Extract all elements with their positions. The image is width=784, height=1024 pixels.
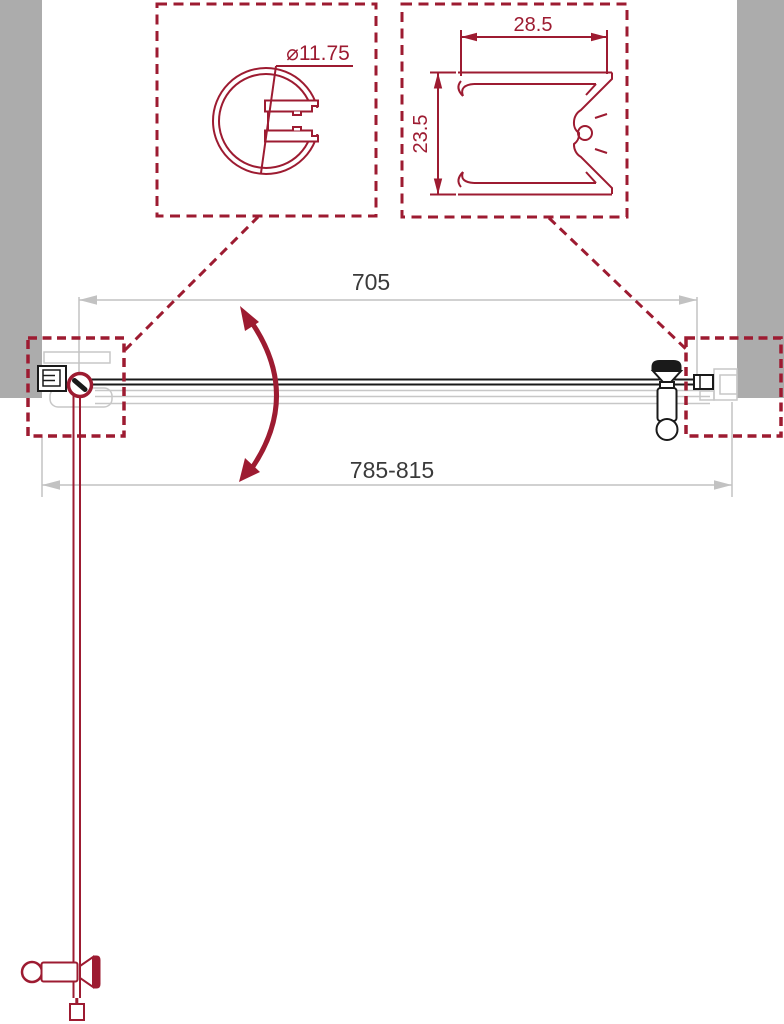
hinge-pivot: [69, 374, 92, 397]
dim-arrow-right: [714, 480, 732, 490]
detail-box-wall-profile: 28.5 23.5: [402, 4, 627, 217]
dim-arrow-left: [42, 480, 60, 490]
door-panel-plan: [85, 375, 713, 389]
technical-drawing-canvas: ⌀11.75 28.5: [0, 0, 784, 1024]
hinge-diameter-label: ⌀11.75: [286, 42, 350, 65]
dim-arrow-left: [79, 295, 97, 305]
leader-line-hinge: [125, 217, 258, 350]
wall-profile-height-label: 23.5: [410, 115, 432, 154]
dimension-wall-profile-height: 23.5: [410, 73, 456, 195]
shower-door-plan-drawing: ⌀11.75 28.5: [0, 0, 784, 1024]
door-swing-arc: [239, 306, 277, 482]
door-width-label: 705: [352, 269, 390, 295]
overall-width-label: 785-815: [350, 457, 434, 483]
dimension-door-width: [79, 295, 697, 375]
wall-profile-section: [458, 73, 612, 195]
dimension-wall-profile-width: 28.5: [461, 14, 607, 76]
handle-knob-top: [652, 360, 682, 440]
dim-arrow-right: [679, 295, 697, 305]
door-panel-open: [22, 396, 101, 1020]
handle-knob-bottom: [22, 956, 101, 989]
door-end-cap: [694, 375, 713, 389]
door-bottom-cap: [70, 1004, 84, 1020]
leader-line-wall-profile: [549, 218, 686, 349]
wall-profile-width-label: 28.5: [514, 14, 553, 36]
wall-profile-left: [38, 366, 66, 391]
detail-box-hinge-profile: ⌀11.75: [157, 4, 376, 216]
